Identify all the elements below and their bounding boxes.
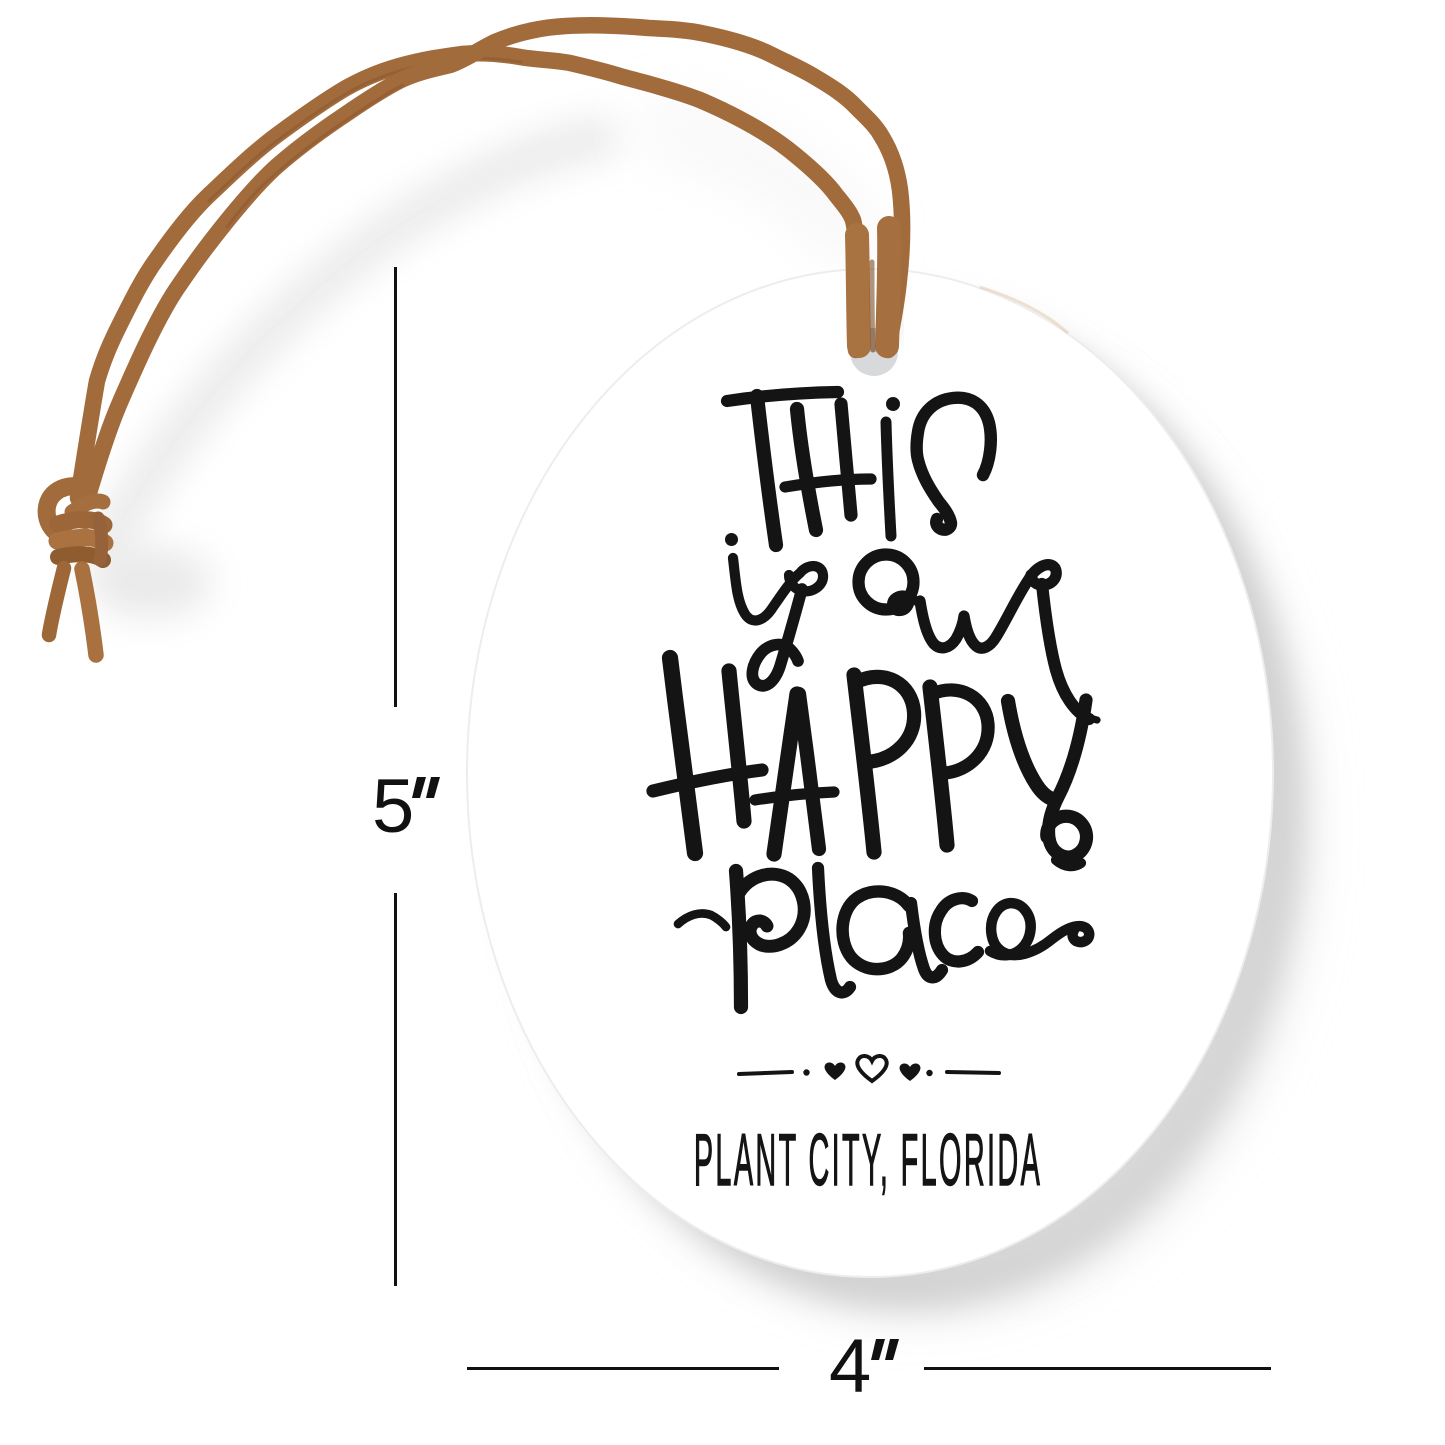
svg-text:PLANT CITY, FLORIDA: PLANT CITY, FLORIDA (694, 1119, 1042, 1201)
svg-text:4: 4 (829, 1324, 871, 1409)
svg-text:5: 5 (372, 764, 414, 849)
